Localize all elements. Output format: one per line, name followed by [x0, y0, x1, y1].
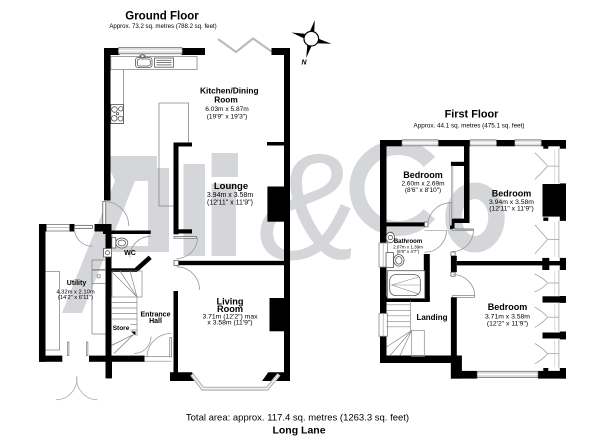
svg-text:Ground Floor: Ground Floor: [125, 11, 199, 23]
svg-text:(19'9" x 19'3"): (19'9" x 19'3"): [207, 114, 248, 121]
svg-text:(12'11" x 11'9"): (12'11" x 11'9"): [207, 200, 253, 207]
svg-text:Lounge: Lounge: [214, 181, 248, 192]
svg-text:N: N: [302, 60, 308, 67]
svg-text:Store: Store: [113, 325, 130, 332]
svg-text:6.03m x 5.87m: 6.03m x 5.87m: [205, 106, 249, 113]
svg-text:(6'9" x 4'7"): (6'9" x 4'7"): [397, 249, 420, 254]
svg-text:Approx. 73.2 sq. metres (788.2: Approx. 73.2 sq. metres (788.2 sq. feet): [109, 23, 216, 30]
svg-text:Utility: Utility: [67, 280, 87, 287]
svg-text:(8'6" x 8'10"): (8'6" x 8'10"): [405, 187, 441, 194]
svg-text:(12'11" x 11'9"): (12'11" x 11'9"): [489, 206, 534, 213]
svg-text:3.71m x 3.58m: 3.71m x 3.58m: [485, 314, 530, 321]
svg-text:First Floor: First Floor: [445, 109, 500, 121]
svg-text:(12'2" x 11'9"): (12'2" x 11'9"): [487, 321, 528, 328]
svg-text:Approx. 44.1 sq. metres (475.1: Approx. 44.1 sq. metres (475.1 sq. feet): [414, 123, 525, 130]
svg-text:(14'2" x 6'11"): (14'2" x 6'11"): [58, 295, 93, 301]
svg-text:Bedroom: Bedroom: [492, 189, 532, 199]
svg-text:x 3.58m (11'9"): x 3.58m (11'9"): [207, 319, 252, 326]
svg-text:Hall: Hall: [149, 318, 162, 325]
svg-text:Bedroom: Bedroom: [488, 302, 528, 312]
svg-text:3.94m x 3.58m: 3.94m x 3.58m: [207, 192, 253, 199]
svg-text:Bedroom: Bedroom: [403, 170, 443, 180]
svg-text:Total area: approx. 117.4 sq.: Total area: approx. 117.4 sq. metres (12…: [186, 413, 409, 424]
svg-text:Landing: Landing: [416, 313, 447, 322]
svg-text:Long Lane: Long Lane: [272, 425, 325, 437]
svg-text:Room: Room: [214, 95, 238, 105]
